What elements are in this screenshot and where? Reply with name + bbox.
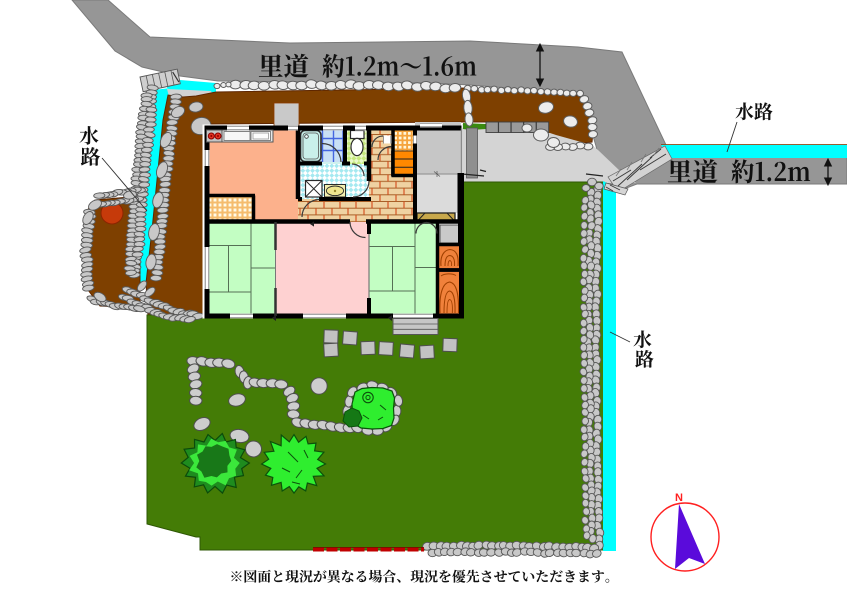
svg-text:N: N [675,492,683,504]
